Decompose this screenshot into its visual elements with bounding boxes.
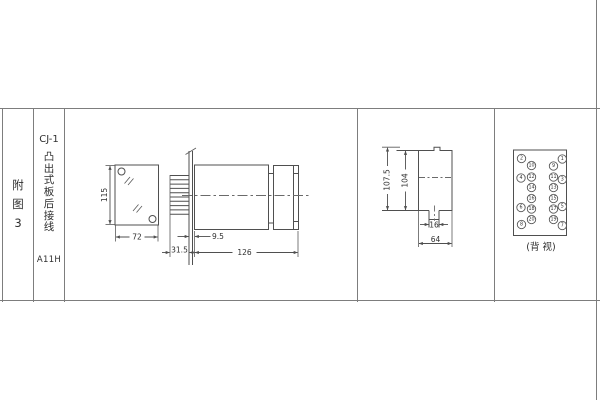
panel-break-mark: [186, 148, 197, 155]
terminal-number: 11: [550, 174, 556, 180]
terminal-number: 8: [520, 221, 523, 227]
drawing-sheet: 115 72: [0, 0, 600, 400]
mounting-hole-bottom-right: [149, 216, 156, 223]
back-view-terminals: 1234567891011121314151617181920: [517, 154, 567, 229]
terminal-number: 4: [519, 175, 522, 181]
back-view-caption: (背 视): [526, 241, 555, 253]
terminal-number: 9: [552, 163, 555, 169]
table-borders: [0, 0, 600, 400]
terminal-number: 20: [528, 216, 534, 222]
terminal-number: 6: [519, 204, 522, 210]
mounting-type-label: 凸 出 式 板 后 接 线: [44, 152, 55, 234]
terminal-number: 18: [528, 206, 534, 212]
side-view: 9.5 31.5 126: [162, 148, 310, 265]
front-view-dimensions: 115 72: [100, 166, 158, 242]
dim-hole-width-label: 64: [431, 235, 441, 244]
glass-hatch-marks: [125, 177, 143, 213]
front-view: 115 72: [100, 165, 159, 242]
side-view-dimensions: 9.5 31.5 126: [162, 231, 298, 257]
dim-hole-height-label: 104: [401, 173, 410, 188]
terminal-number: 1: [561, 156, 564, 162]
dim-total-height-label: 107.5: [383, 169, 392, 191]
dim-panel-offset-label: 9.5: [212, 232, 224, 241]
panel-cutout-view: 107.5 104 16 64: [382, 147, 452, 247]
terminal-number: 13: [550, 184, 556, 190]
terminal-number: 10: [528, 162, 534, 168]
terminal-number: 12: [528, 174, 534, 180]
relay-body-outline: [195, 165, 269, 230]
dim-width-label: 72: [132, 233, 142, 242]
model-label: CJ-1: [39, 134, 59, 145]
figure-number-label: 附 图 3: [3, 108, 33, 300]
title-block-column: CJ-1 凸 出 式 板 后 接 线 A11H: [34, 108, 64, 300]
terminal-number: 19: [550, 216, 556, 222]
terminal-number: 2: [520, 155, 523, 161]
terminal-number: 5: [561, 203, 564, 209]
technical-drawing: 115 72: [0, 0, 600, 400]
dim-total-length-label: 126: [237, 248, 252, 257]
terminal-number: 15: [550, 195, 556, 201]
dim-notch-width-label: 16: [429, 220, 439, 229]
relay-rear-case: [269, 166, 299, 230]
code-label: A11H: [37, 255, 61, 265]
terminal-number: 3: [561, 176, 564, 182]
terminal-number: 7: [561, 222, 564, 228]
dim-height-label: 115: [100, 188, 109, 203]
dim-pin-length-label: 31.5: [171, 245, 188, 254]
terminal-number: 17: [550, 206, 556, 212]
terminal-number: 16: [528, 195, 534, 201]
mounting-hole-top-left: [118, 168, 125, 175]
terminal-number: 14: [528, 184, 534, 190]
cutout-dimensions: 107.5 104 16 64: [383, 148, 452, 247]
cutout-outline: [382, 147, 452, 227]
back-view: 1234567891011121314151617181920 (背 视): [514, 150, 567, 253]
